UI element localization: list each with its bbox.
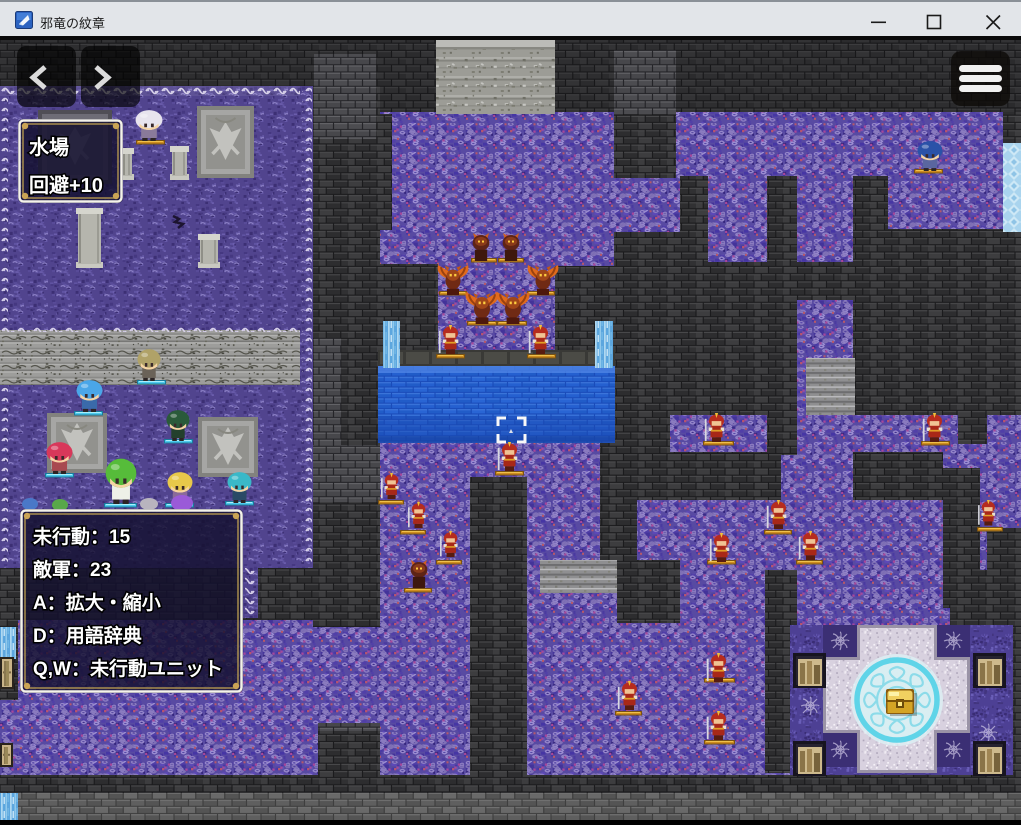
- svg-text:Q,W：未行動ユニット: Q,W：未行動ユニット: [33, 657, 223, 680]
- svg-text:D：用語辞典: D：用語辞典: [33, 624, 142, 647]
- svg-text:A：拡大・縮小: A：拡大・縮小: [33, 591, 161, 614]
- svg-text:敵軍：23: 敵軍：23: [33, 558, 111, 581]
- svg-text:水場: 水場: [29, 136, 69, 159]
- svg-text:未行動：15: 未行動：15: [32, 525, 131, 548]
- svg-text:回避+10: 回避+10: [29, 173, 103, 197]
